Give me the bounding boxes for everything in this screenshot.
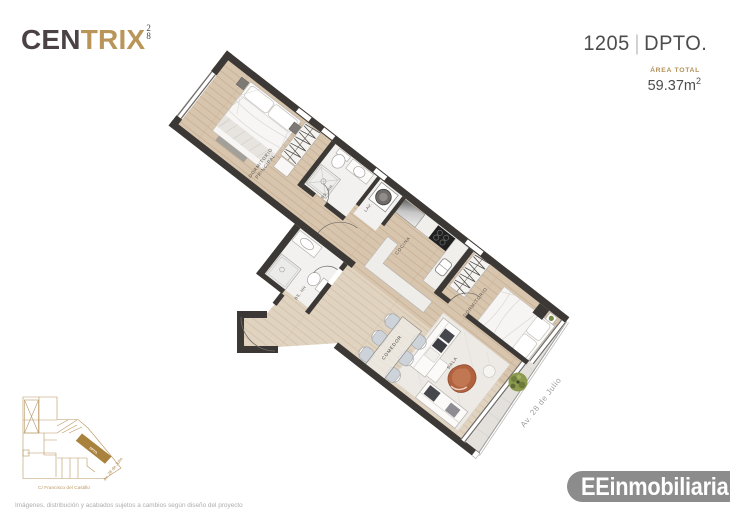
svg-text:C/ Francisco del Castillo: C/ Francisco del Castillo [38, 485, 90, 491]
